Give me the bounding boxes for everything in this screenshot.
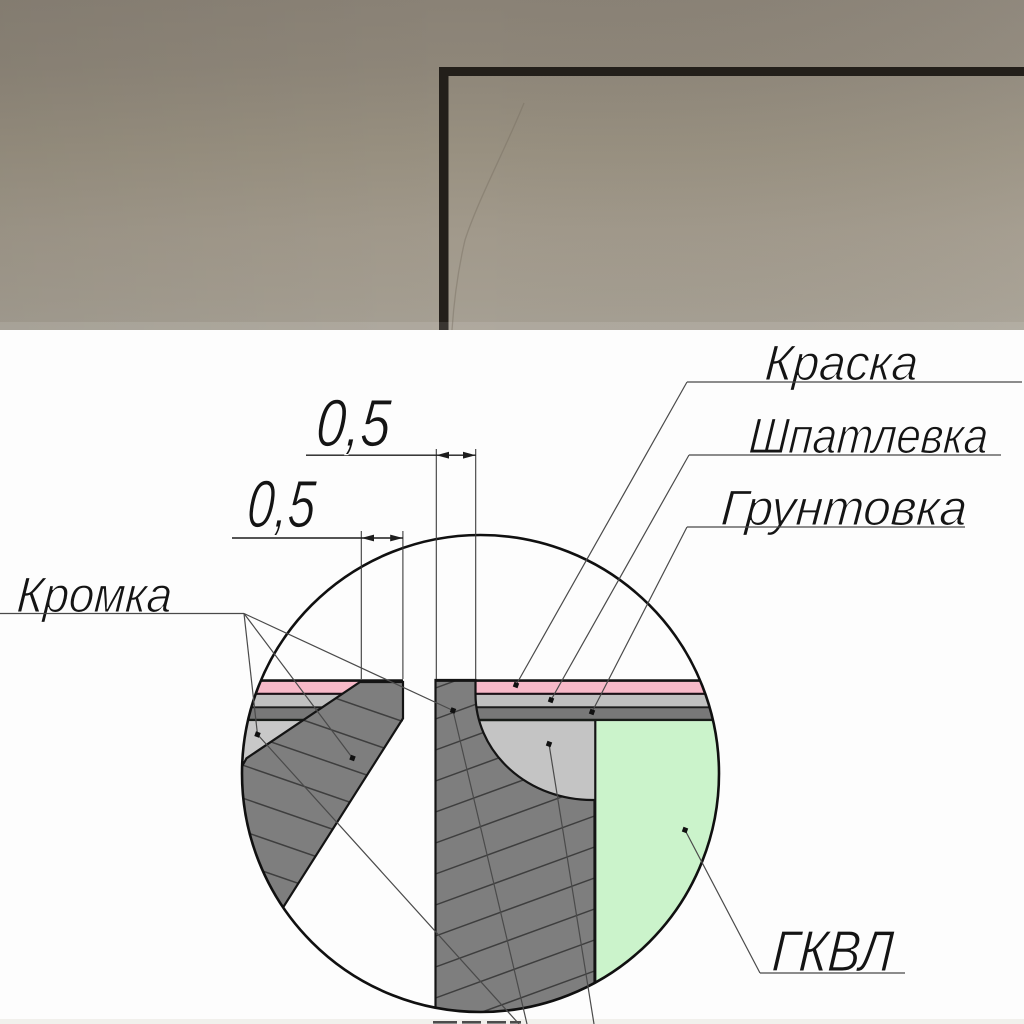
svg-text:0,5: 0,5 xyxy=(245,467,319,542)
svg-text:ГКВЛ: ГКВЛ xyxy=(770,919,896,984)
svg-text:0,5: 0,5 xyxy=(314,386,394,461)
svg-text:Кромка: Кромка xyxy=(15,567,174,623)
